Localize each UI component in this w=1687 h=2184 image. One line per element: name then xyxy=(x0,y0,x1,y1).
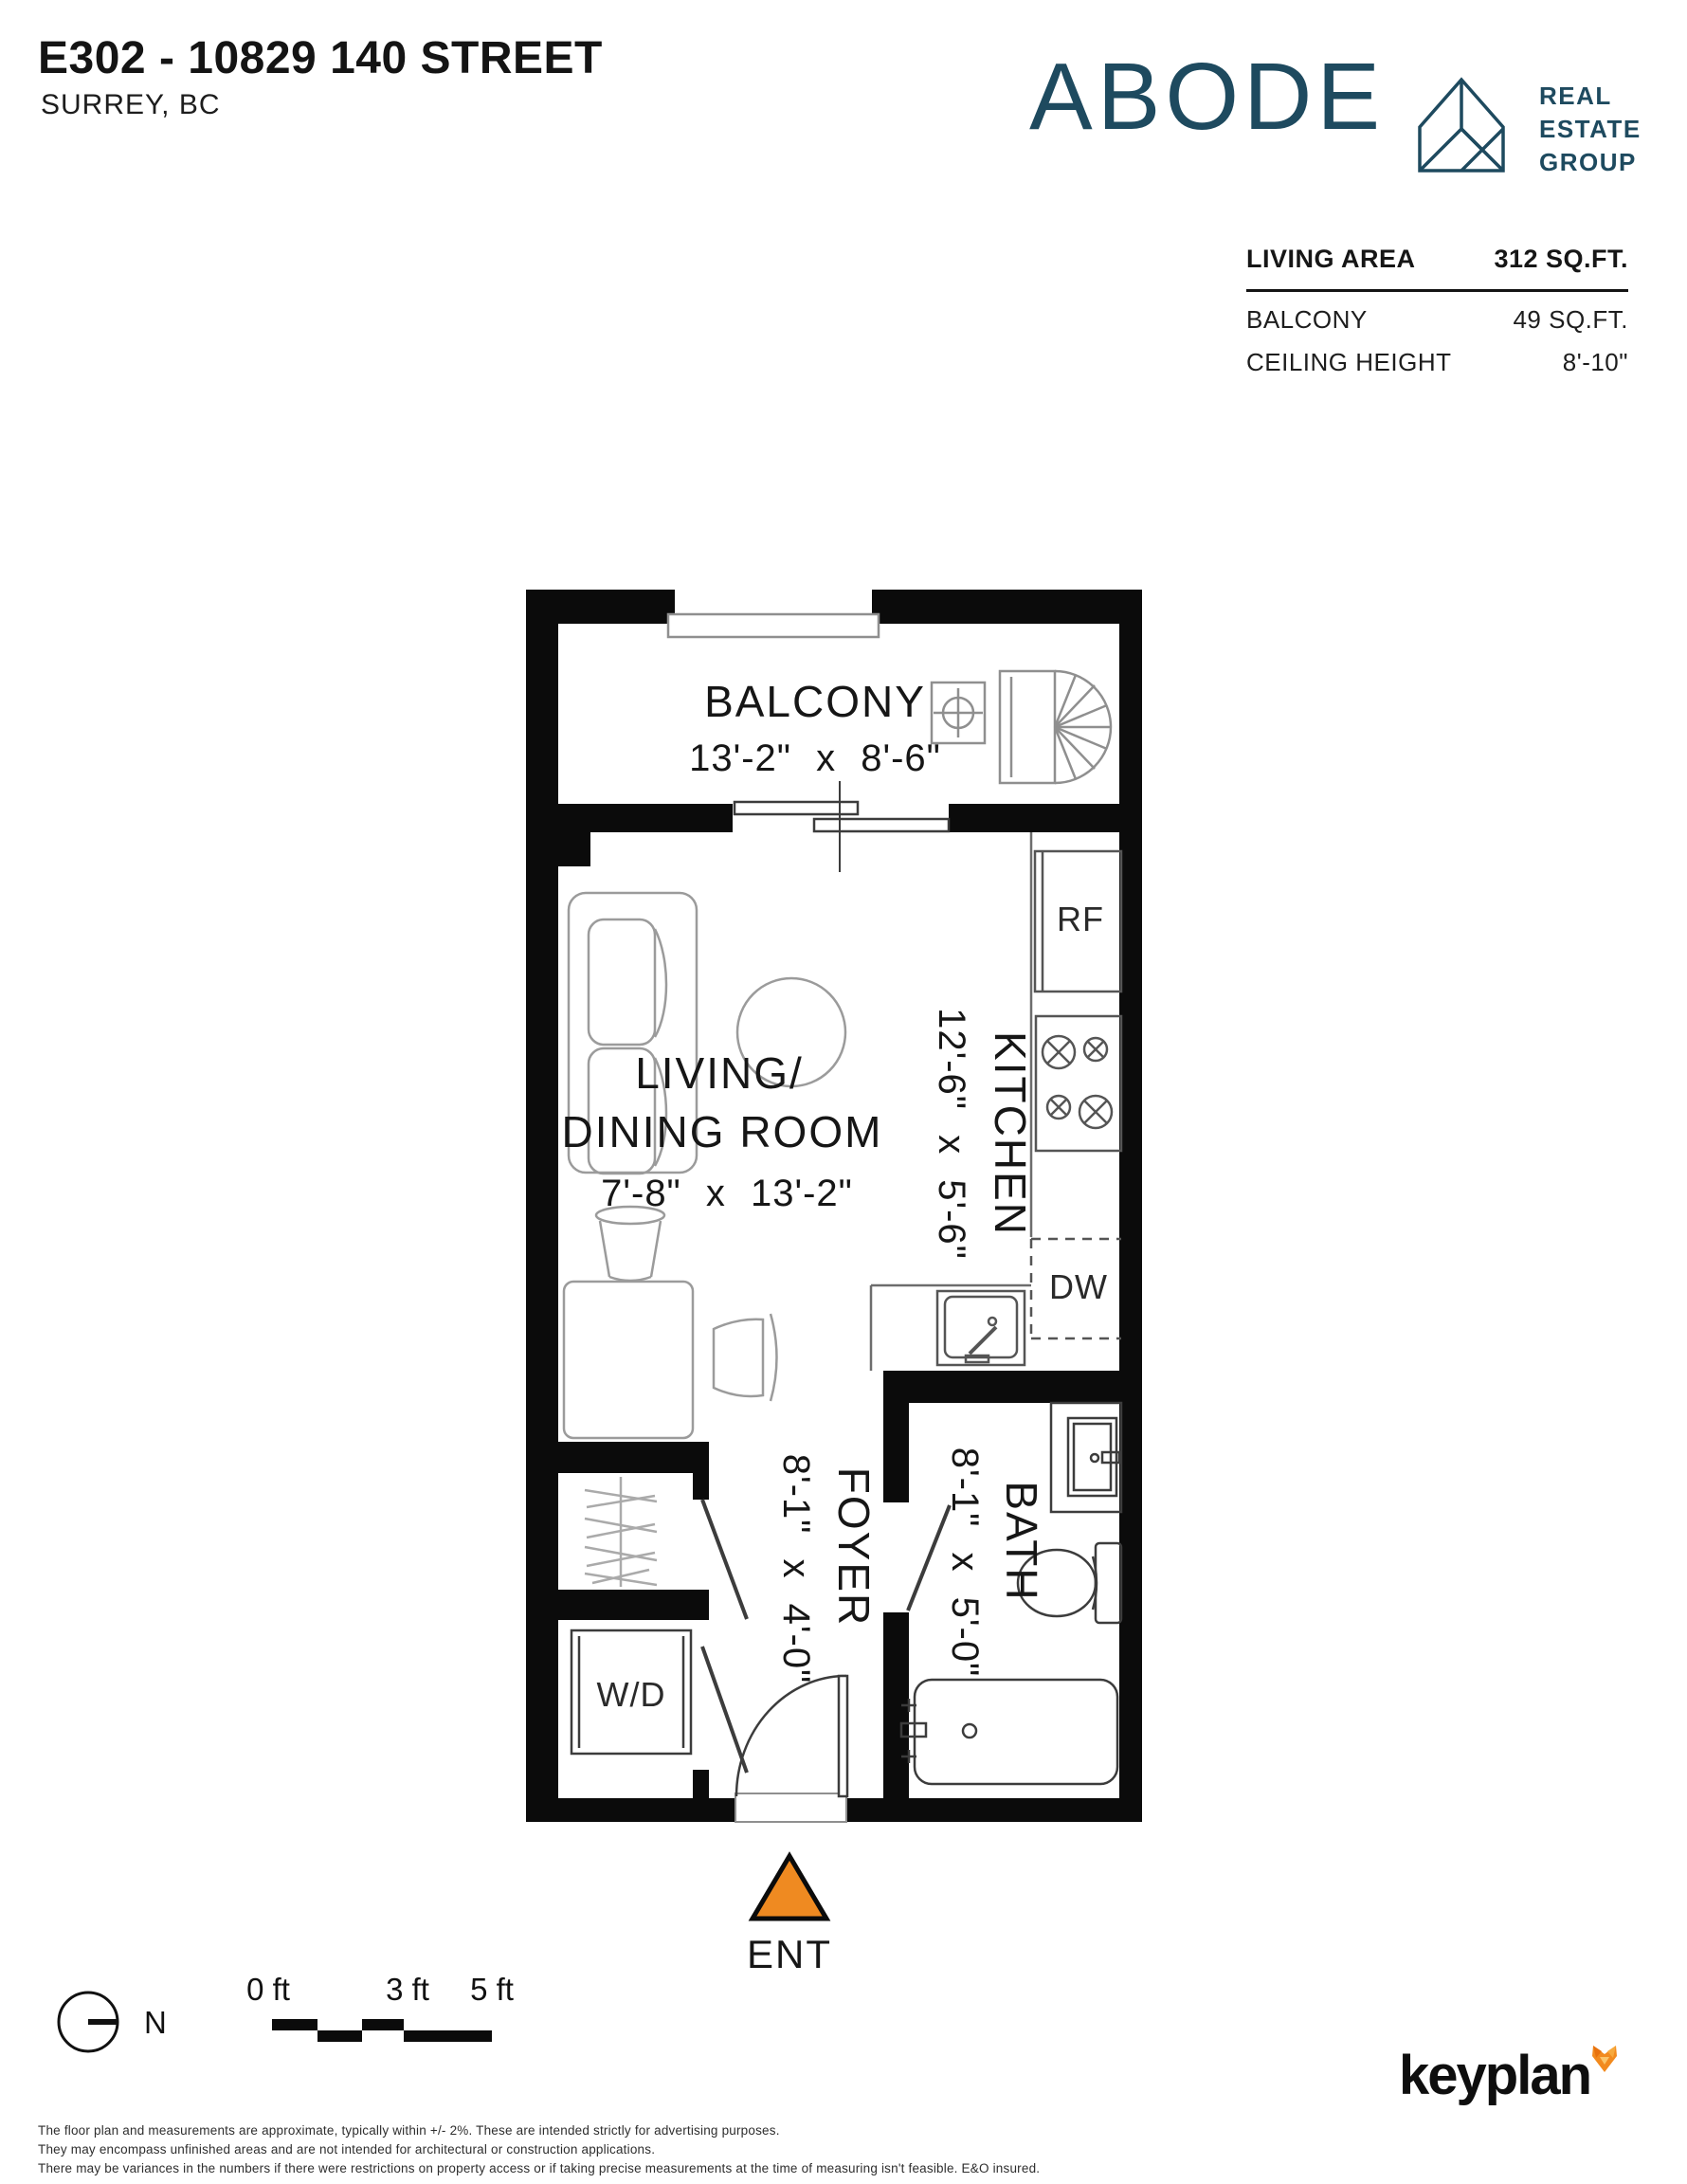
bath-door xyxy=(908,1505,950,1611)
page-title: E302 - 10829 140 STREET xyxy=(38,32,603,84)
table-row: CEILING HEIGHT 8'-10" xyxy=(1246,348,1628,377)
entry-door xyxy=(735,1676,847,1822)
bath-vanity-sink xyxy=(1051,1403,1121,1512)
stat-label: BALCONY xyxy=(1246,305,1368,335)
disclaimer-text: The floor plan and measurements are appr… xyxy=(38,2121,1040,2178)
desk-chair xyxy=(714,1314,777,1401)
scale-tick-label: 5 ft xyxy=(470,1972,514,2007)
floorplan-drawing: RF DW xyxy=(526,588,1142,1981)
living-dining-label: LIVING/ xyxy=(635,1048,804,1098)
closet-hangers xyxy=(585,1477,657,1587)
north-label: N xyxy=(144,2005,167,2040)
balcony-dims: 13'-2" x 8'-6" xyxy=(689,737,941,779)
washer-dryer-label: W/D xyxy=(597,1675,666,1714)
fox-icon xyxy=(1592,2046,1617,2072)
table-row: BALCONY 49 SQ.FT. xyxy=(1246,305,1628,335)
kitchen-label: KITCHEN xyxy=(986,1031,1035,1236)
desk xyxy=(564,1282,693,1438)
balcony-label: BALCONY xyxy=(704,677,926,726)
bathtub xyxy=(901,1680,1117,1784)
balcony-railing xyxy=(668,614,879,637)
keyplan-logo: keyplan xyxy=(1399,2038,1617,2114)
tagline-line: REAL xyxy=(1539,80,1642,113)
house-logo-icon xyxy=(1416,76,1507,179)
disclaimer-line: They may encompass unfinished areas and … xyxy=(38,2140,1040,2159)
kitchen-dims: 12'-6" x 5'-6" xyxy=(931,1008,972,1260)
foyer-dims: 8'-1" x 4'-0" xyxy=(775,1454,817,1684)
keyplan-wordmark: keyplan xyxy=(1399,2038,1590,2114)
abode-wordmark: ABODE xyxy=(1029,49,1385,144)
entrance-arrow-icon xyxy=(753,1856,826,1919)
entrance-label: ENT xyxy=(747,1932,832,1976)
scale-tick-label: 0 ft xyxy=(246,1972,290,2007)
stat-label: LIVING AREA xyxy=(1246,245,1416,274)
stat-label: CEILING HEIGHT xyxy=(1246,348,1451,377)
north-compass-icon xyxy=(59,1993,118,2051)
disclaimer-line: There may be variances in the numbers if… xyxy=(38,2159,1040,2178)
fridge-label: RF xyxy=(1057,900,1104,938)
floor-lamp xyxy=(596,1207,664,1281)
stat-value: 49 SQ.FT. xyxy=(1513,305,1628,335)
brand-tagline: REAL ESTATE GROUP xyxy=(1539,80,1642,179)
tagline-line: GROUP xyxy=(1539,146,1642,179)
living-dining-dims: 7'-8" x 13'-2" xyxy=(601,1173,853,1214)
bath-label: BATH xyxy=(997,1481,1046,1601)
scale-bar-icon xyxy=(272,2019,492,2042)
balcony-chair xyxy=(1000,671,1111,783)
living-dining-label: DINING ROOM xyxy=(562,1107,883,1156)
foyer-label: FOYER xyxy=(829,1467,879,1627)
table-row: LIVING AREA 312 SQ.FT. xyxy=(1246,245,1628,292)
scale-and-compass: N 0 ft 3 ft 5 ft xyxy=(38,1960,569,2070)
tagline-line: ESTATE xyxy=(1539,113,1642,146)
stove xyxy=(1036,1016,1121,1151)
scale-tick-label: 3 ft xyxy=(386,1972,429,2007)
dishwasher-label: DW xyxy=(1049,1267,1108,1306)
kitchen-sink xyxy=(937,1291,1025,1365)
disclaimer-line: The floor plan and measurements are appr… xyxy=(38,2121,1040,2140)
balcony-bbq xyxy=(932,682,985,743)
stat-value: 312 SQ.FT. xyxy=(1494,245,1628,274)
area-stats-table: LIVING AREA 312 SQ.FT. BALCONY 49 SQ.FT.… xyxy=(1246,245,1628,377)
interior-doors xyxy=(702,1500,747,1773)
bath-dims: 8'-1" x 5'-0" xyxy=(944,1447,986,1678)
page-subtitle-city: SURREY, BC xyxy=(41,89,221,121)
stat-value: 8'-10" xyxy=(1563,348,1628,377)
